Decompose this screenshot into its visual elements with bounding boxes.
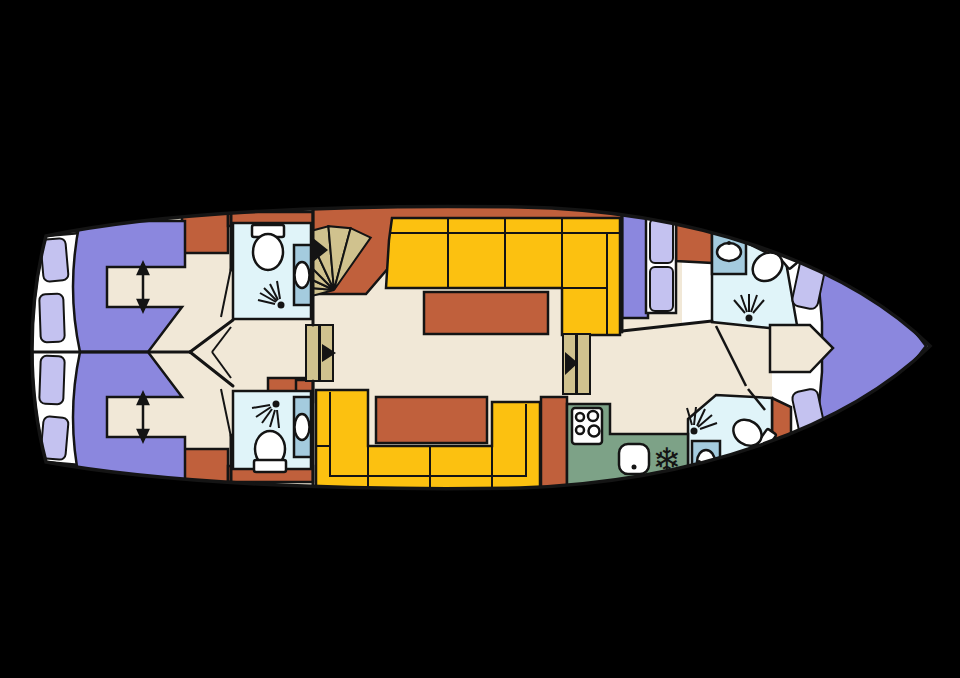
mid-cabin-berth bbox=[622, 213, 676, 318]
aft-bathroom-bottom bbox=[233, 391, 311, 472]
washbasin-icon bbox=[295, 262, 310, 288]
deck-plan-canvas: ❄ bbox=[0, 0, 960, 678]
stern-cushion bbox=[39, 356, 65, 405]
aft-wardrobe-bottom bbox=[182, 449, 228, 491]
salon-table-top bbox=[424, 292, 548, 334]
salon-door-left bbox=[306, 325, 319, 381]
salon-table-bottom bbox=[376, 397, 487, 443]
pillow bbox=[650, 219, 673, 263]
bow-bathroom-top bbox=[712, 226, 798, 331]
yacht-deck-plan: ❄ bbox=[0, 0, 960, 678]
galley-side-cabinet bbox=[541, 397, 567, 490]
aft-bathroom-top bbox=[233, 223, 311, 319]
washbasin-icon bbox=[295, 414, 310, 440]
pillow bbox=[650, 267, 673, 311]
stern-cushion bbox=[39, 294, 65, 343]
washbasin-icon bbox=[717, 243, 741, 261]
